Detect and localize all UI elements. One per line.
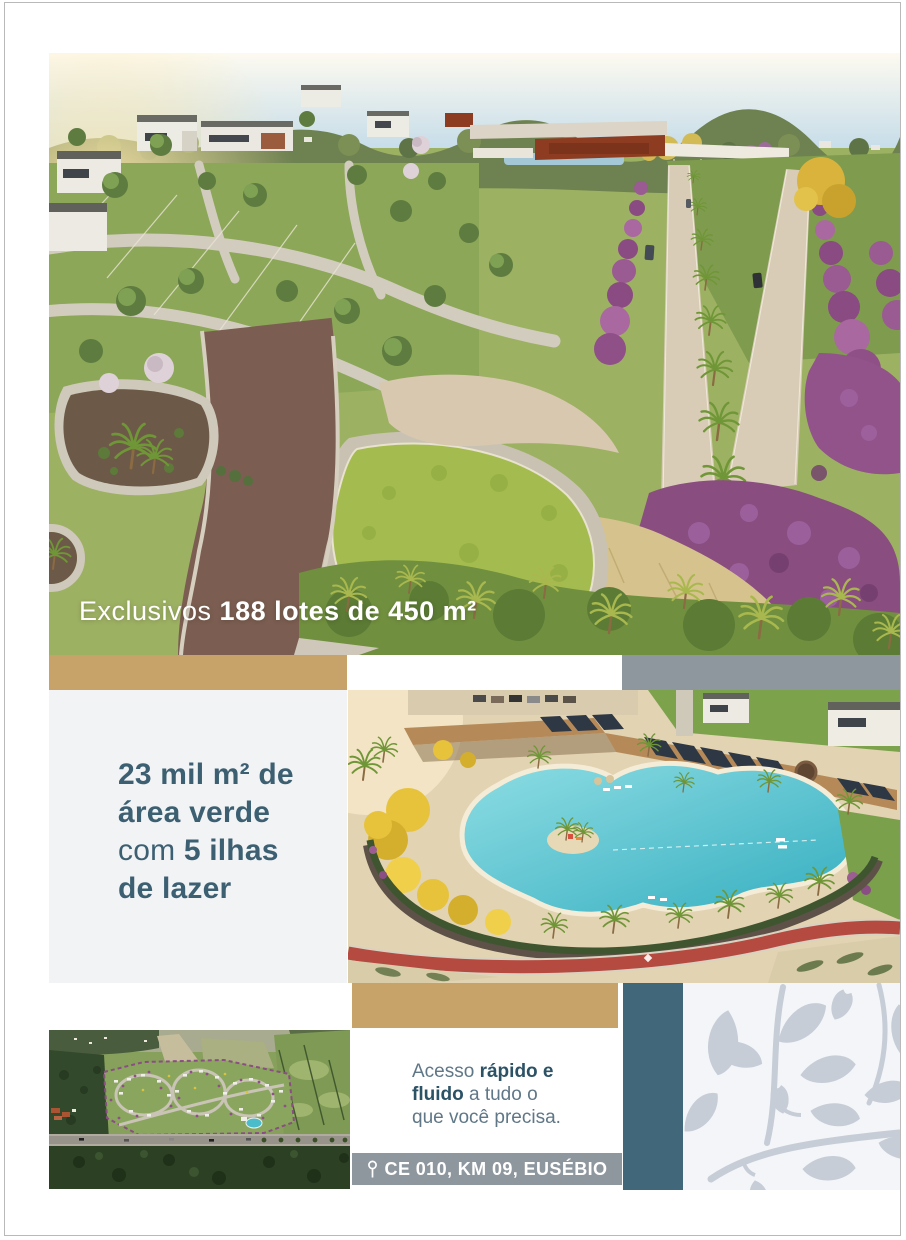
green-area-line1: 23 mil m² de bbox=[118, 756, 294, 794]
access-line1: Acesso rápido e bbox=[412, 1060, 561, 1083]
hero-aerial-render: Exclusivos 188 lotes de 450 m² bbox=[49, 53, 900, 655]
green-area-heading: 23 mil m² de área verde com 5 ilhas de l… bbox=[118, 756, 294, 908]
pool-aerial-render bbox=[348, 690, 900, 983]
location-bar: CE 010, KM 09, EUSÉBIO bbox=[352, 1153, 622, 1185]
access-line2-bold: fluido bbox=[412, 1084, 464, 1105]
green-area-panel: 23 mil m² de área verde com 5 ilhas de l… bbox=[49, 690, 347, 983]
access-line2-regular: a tudo o bbox=[464, 1084, 538, 1105]
hero-caption-regular: Exclusivos bbox=[79, 596, 220, 626]
map-pin-icon bbox=[367, 1160, 378, 1179]
location-label: CE 010, KM 09, EUSÉBIO bbox=[385, 1159, 608, 1180]
pool-render-illustration bbox=[348, 690, 900, 983]
green-area-line3-bold: 5 ilhas bbox=[184, 834, 279, 867]
green-area-line3: com 5 ilhas bbox=[118, 832, 294, 870]
access-line1-regular: Acesso bbox=[412, 1061, 480, 1082]
hero-caption-bold: 188 lotes de 450 m² bbox=[220, 596, 477, 626]
access-text: Acesso rápido e fluido a tudo o que você… bbox=[412, 1060, 561, 1129]
teal-accent-bar bbox=[623, 983, 683, 1190]
access-line3: que você precisa. bbox=[412, 1106, 561, 1129]
gold-divider-bar bbox=[49, 655, 347, 690]
green-area-line2: área verde bbox=[118, 794, 294, 832]
access-text-box: Acesso rápido e fluido a tudo o que você… bbox=[352, 1028, 622, 1153]
leaf-pattern-panel bbox=[683, 983, 900, 1190]
access-line1-bold: rápido e bbox=[480, 1061, 554, 1082]
green-area-line3-light: com bbox=[118, 834, 184, 867]
gray-divider-bar bbox=[622, 655, 900, 690]
leaf-pattern-illustration bbox=[683, 983, 900, 1190]
masterplan-aerial-illustration bbox=[49, 1030, 350, 1189]
hero-caption: Exclusivos 188 lotes de 450 m² bbox=[79, 596, 477, 627]
gold-accent-block bbox=[352, 983, 618, 1028]
access-line2: fluido a tudo o bbox=[412, 1083, 561, 1106]
green-area-line4: de lazer bbox=[118, 870, 294, 908]
hero-render-illustration bbox=[49, 53, 900, 655]
masterplan-aerial-photo bbox=[49, 1030, 350, 1189]
